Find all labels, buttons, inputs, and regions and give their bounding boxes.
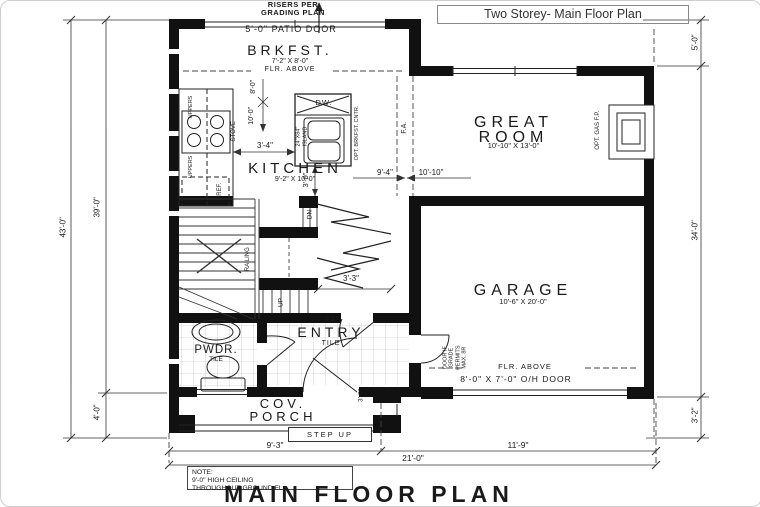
floor-plan-page: Two Storey- Main Floor Plan RISERS PER G… (0, 0, 760, 507)
railing-label: RAILING (245, 236, 251, 282)
island-label: 24"X84" ISLAND (295, 112, 308, 162)
stove-label: STOVE (231, 113, 237, 149)
island-label-line1: 24"X84" (295, 112, 302, 162)
dim-right-top: 5'-0" (692, 22, 701, 62)
uppers-top-label: UPPERS (189, 91, 195, 123)
patio-door-label: 5'-0" PATIO DOOR (213, 25, 369, 35)
opt-brkfst-cntr-label: OPT. BRKFST. CNTR. (355, 101, 361, 165)
dim-right-mid: 34'-0" (692, 208, 701, 252)
step-up-label: STEP UP (288, 427, 372, 442)
room-label-porch-line2: PORCH (223, 410, 343, 424)
grade-door-note-line4: MAX. 8R (461, 328, 467, 388)
dim-bottom-total: 21'-0" (383, 454, 443, 463)
room-size-kitchen: 9'-2" X 10'-0" (233, 176, 357, 184)
island-label-line2: ISLAND (302, 112, 309, 162)
flr-above-garage: FLR. ABOVE (469, 363, 581, 371)
ceiling-note-line1: NOTE: (192, 469, 348, 477)
dim-closet-width: 3'-3" (331, 275, 371, 284)
plan-title: MAIN FLOOR PLAN (177, 482, 561, 507)
dim-vert-lower: 10'-0" (248, 96, 256, 136)
room-size-garage: 10'-6" X 20'-0" (458, 298, 588, 306)
room-label-kitchen: KITCHEN (233, 161, 357, 177)
entry-floor-label: TILE (284, 340, 378, 348)
dim-entry-door: 3'-0" (357, 379, 364, 413)
drawing-title: Two Storey- Main Floor Plan (437, 5, 689, 24)
dim-pass-vert: 3'-0" (302, 160, 310, 200)
room-label-pwdr: PWDR. (180, 344, 252, 356)
stairs-dn-label: DN (306, 205, 313, 225)
fridge-label: REF. (217, 175, 223, 203)
room-size-brkfst: 7'-2" X 8'-0" (228, 58, 352, 66)
dim-bottom-left: 9'-3" (245, 441, 305, 450)
room-label-entry: ENTRY (284, 325, 378, 340)
uppers-bottom-label: UPPERS (189, 151, 195, 183)
floorplan-drawing (1, 1, 760, 506)
flr-above-brkfst: FLR. ABOVE (250, 66, 330, 74)
dim-left-outer: 43'-0" (60, 205, 69, 249)
room-size-great: 10'-10" X 13'-0" (451, 142, 576, 150)
dim-left-inner: 39'-0" (94, 185, 103, 229)
dim-great-width: 10'-10" (405, 169, 457, 178)
dim-kitchen-width: 9'-4" (365, 169, 405, 178)
dim-counter-gap: 3'-4" (240, 142, 290, 151)
room-label-brkfst: BRKFST. (228, 43, 352, 58)
dim-bottom-right: 11'-9" (488, 441, 548, 450)
grade-door-note: DOOR IF GRADE PERMITS MAX. 8R (442, 328, 467, 388)
pwdr-floor-label: TILE (180, 356, 252, 363)
dim-right-bottom: 3'-2" (692, 395, 701, 435)
risers-note-line2: GRADING PLAN (233, 9, 353, 17)
opt-gas-fp-label: OPT. GAS F.P. (595, 102, 601, 158)
stairs-up-label: UP (277, 293, 284, 313)
dishwasher-label: DW. (301, 99, 347, 107)
fa-passage-label: F.A. (401, 113, 409, 143)
dim-left-bottom: 4'-0" (94, 392, 103, 432)
